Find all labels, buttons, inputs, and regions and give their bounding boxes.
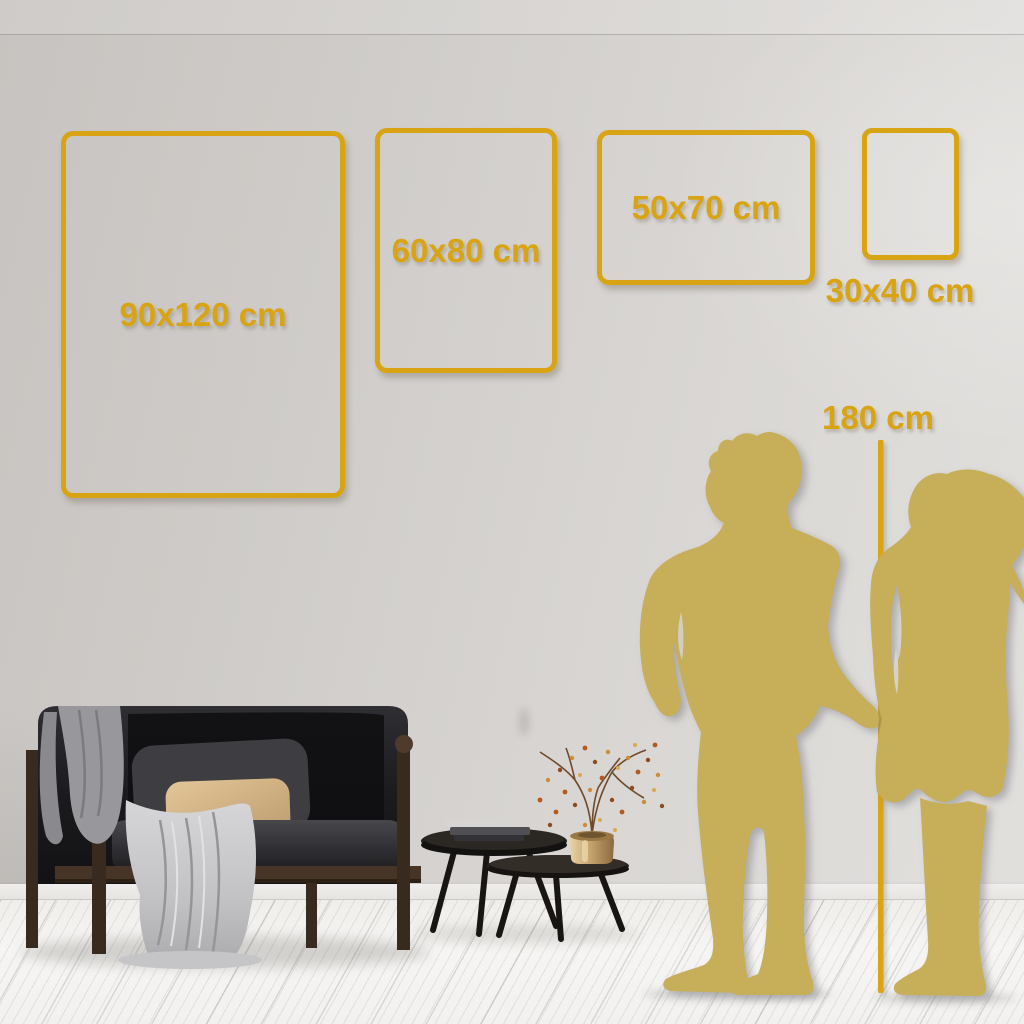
brass-vase xyxy=(570,831,614,864)
size-label-30x40: 30x40 cm xyxy=(826,272,975,310)
man-silhouette xyxy=(640,432,879,995)
size-frame-group-30x40: 30x40 cm xyxy=(810,128,1014,310)
size-label-60x80: 60x80 cm xyxy=(392,232,541,270)
size-frame-60x80: 60x80 cm xyxy=(375,128,557,373)
books xyxy=(446,820,530,841)
sofa xyxy=(26,706,421,969)
size-frame-30x40 xyxy=(862,128,959,260)
throw-blanket xyxy=(40,706,124,844)
couple-silhouette xyxy=(640,432,1024,996)
nesting-coffee-tables xyxy=(421,743,664,939)
wood-finial xyxy=(395,735,413,753)
size-frame-50x70: 50x70 cm xyxy=(597,130,815,285)
wall-smudge xyxy=(519,708,529,736)
size-guide-scene: 90x120 cm 60x80 cm 50x70 cm 30x40 cm 180… xyxy=(0,0,1024,1024)
height-marker-label: 180 cm xyxy=(812,399,944,437)
size-frame-90x120: 90x120 cm xyxy=(61,131,345,498)
dried-berry-branch xyxy=(538,743,665,834)
size-label-90x120: 90x120 cm xyxy=(120,296,287,334)
size-label-50x70: 50x70 cm xyxy=(632,189,781,227)
woman-legs xyxy=(894,798,987,996)
